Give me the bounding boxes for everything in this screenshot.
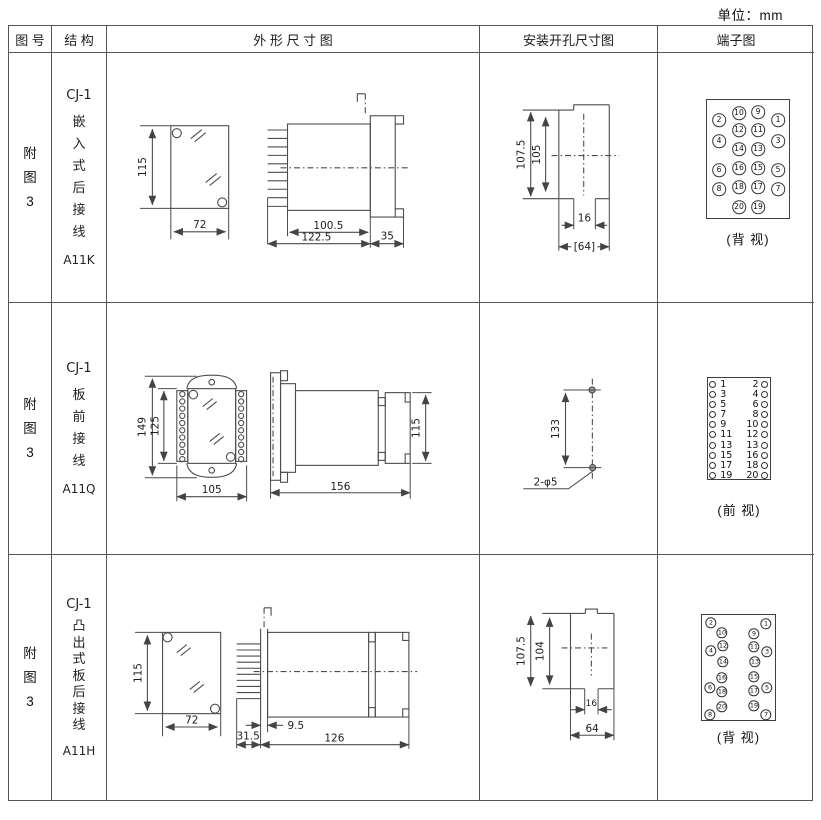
terminal-13: 13 <box>751 142 765 156</box>
terminal-circle <box>709 411 716 418</box>
dim-front-height: 115 <box>137 157 149 177</box>
terminal-pair-row: 34 <box>708 389 770 399</box>
structure-cell-row1: CJ-1 嵌 入 式 后 接 线 A11K <box>52 53 107 303</box>
structure-code: A11Q <box>63 482 96 496</box>
terminal-pair-row: 78 <box>708 410 770 420</box>
terminal-circle <box>761 421 768 428</box>
dim-slot-width: 16 <box>578 212 591 224</box>
terminal-circle <box>709 452 716 459</box>
structure-model: CJ-1 <box>66 361 91 376</box>
terminal-8: 8 <box>704 709 715 720</box>
dim-hole-spacing: 133 <box>550 419 562 439</box>
fig-no-cell-row2: 附 图 3 <box>9 303 52 555</box>
terminal-17: 17 <box>748 685 759 696</box>
units-label: 单位：mm <box>718 4 784 24</box>
terminal-view-caption: (前 视) <box>707 500 771 519</box>
install-drawing-a11h: 107.5 104 16 64 <box>480 555 657 800</box>
dim-side-total: 122.5 <box>301 232 331 244</box>
terminal-5: 5 <box>761 682 772 693</box>
terminal-13: 13 <box>749 656 760 667</box>
dim-slot-width: 16 <box>586 699 598 709</box>
fig-no-cell-row3: 附 图 3 <box>9 555 52 800</box>
dim-front-inner-height: 125 <box>149 416 161 436</box>
dim-cutout-width: [64] <box>574 241 595 253</box>
structure-cell-row3: CJ-1 凸 出 式 板 后 接 线 A11H <box>52 555 107 800</box>
terminal-11: 11 <box>751 123 765 137</box>
dim-cutout-width: 64 <box>586 723 600 735</box>
drawing-sheet: 单位：mm 图 号 结 构 外 形 尺 寸 图 安装开孔尺寸图 端子图 附 图 … <box>0 0 821 820</box>
structure-model: CJ-1 <box>66 597 91 612</box>
terminal-pair-row: 12 <box>708 379 770 389</box>
header-install: 安装开孔尺寸图 <box>480 26 658 53</box>
dim-cutout-inner-height: 105 <box>531 145 543 165</box>
structure-cell-row2: CJ-1 板 前 接 线 A11Q <box>52 303 107 555</box>
install-drawing-a11q: 133 2-φ5 <box>480 303 657 554</box>
terminal-19: 19 <box>751 200 765 214</box>
terminal-7: 7 <box>760 709 771 720</box>
drawing-table: 图 号 结 构 外 形 尺 寸 图 安装开孔尺寸图 端子图 附 图 3 CJ-1… <box>8 25 813 801</box>
terminal-circle <box>761 411 768 418</box>
structure-code: A11K <box>63 253 94 267</box>
terminal-cell-row1: 2109141211314136161558181772019 (背 视) <box>658 53 814 303</box>
header-outline: 外 形 尺 寸 图 <box>107 26 480 53</box>
terminal-3: 3 <box>761 646 772 657</box>
header-terminal: 端子图 <box>658 26 814 53</box>
terminal-18: 18 <box>732 180 746 194</box>
terminal-6: 6 <box>704 682 715 693</box>
terminal-20: 20 <box>732 200 746 214</box>
terminal-3: 3 <box>771 134 785 148</box>
terminal-circle <box>761 431 768 438</box>
terminal-circle <box>709 472 716 479</box>
outline-cell-row2: 149 125 105 115 156 <box>107 303 480 555</box>
terminal-10: 10 <box>716 627 727 638</box>
terminal-circle <box>761 401 768 408</box>
terminal-circle <box>709 381 716 388</box>
terminal-5: 5 <box>771 163 785 177</box>
dim-cutout-outer-height: 107.5 <box>516 636 528 666</box>
structure-mount-type: 凸 出 式 板 后 接 线 <box>72 618 85 734</box>
outline-cell-row1: 115 72 100.5 122.5 35 <box>107 53 480 303</box>
dim-side-height: 115 <box>411 418 423 438</box>
terminal-pair-row: 1313 <box>708 440 770 450</box>
terminal-10: 10 <box>732 106 746 120</box>
terminal-6: 6 <box>712 163 726 177</box>
terminal-circle <box>761 391 768 398</box>
dim-front-height: 115 <box>132 663 144 683</box>
terminal-circle <box>761 472 768 479</box>
terminal-7: 7 <box>771 182 785 196</box>
terminal-2: 2 <box>712 113 726 127</box>
terminal-circle <box>709 391 716 398</box>
fig-no-label: 附 图 3 <box>23 642 37 714</box>
terminal-14: 14 <box>732 142 746 156</box>
header-structure: 结 构 <box>52 26 107 53</box>
dim-cutout-outer-height: 107.5 <box>516 140 528 170</box>
terminal-circle <box>761 442 768 449</box>
terminal-14: 14 <box>717 656 728 667</box>
terminal-circle <box>761 381 768 388</box>
terminal-circle <box>709 462 716 469</box>
terminal-cell-row2: 1234567891011121313151617181920 (前 视) <box>658 303 814 555</box>
terminal-12: 12 <box>717 640 728 651</box>
terminal-1: 1 <box>760 618 771 629</box>
terminal-circle <box>709 421 716 428</box>
outline-drawing-a11h: 115 72 9.5 31.5 126 <box>107 555 479 800</box>
terminal-20: 20 <box>716 701 727 712</box>
dim-front-width: 72 <box>193 219 206 231</box>
terminal-number: 20 <box>746 470 758 481</box>
outline-drawing-a11q: 149 125 105 115 156 <box>107 303 479 554</box>
terminal-16: 16 <box>732 161 746 175</box>
fig-no-label: 附 图 3 <box>23 393 37 465</box>
dim-side-total: 156 <box>330 481 350 493</box>
install-cell-row2: 133 2-φ5 <box>480 303 658 555</box>
dim-front-width: 72 <box>185 714 198 726</box>
terminal-cell-row3: 2110912114314131615651817201987 (背 视) <box>658 555 814 800</box>
dim-front-width: 105 <box>202 484 222 496</box>
terminal-12: 12 <box>732 123 746 137</box>
terminal-17: 17 <box>751 180 765 194</box>
terminal-circle <box>709 431 716 438</box>
terminal-pair-row: 910 <box>708 420 770 430</box>
terminal-pair-row: 1112 <box>708 430 770 440</box>
terminal-view-caption: (背 视) <box>701 727 776 746</box>
terminal-diagram-back-view: 2110912114314131615651817201987 <box>701 614 776 721</box>
hole-diameter-label: 2-φ5 <box>534 476 558 488</box>
terminal-15: 15 <box>748 671 759 682</box>
dim-board-thickness: 9.5 <box>288 720 305 732</box>
terminal-9: 9 <box>748 628 759 639</box>
install-cell-row1: 107.5 105 16 [64] <box>480 53 658 303</box>
terminal-view-caption: (背 视) <box>706 229 790 248</box>
structure-model: CJ-1 <box>66 88 91 103</box>
terminal-diagram-back-view: 2109141211314136161558181772019 <box>706 99 790 219</box>
terminal-2: 2 <box>705 617 716 628</box>
fig-no-cell-row1: 附 图 3 <box>9 53 52 303</box>
terminal-circle <box>709 401 716 408</box>
terminal-15: 15 <box>751 161 765 175</box>
header-fig-no: 图 号 <box>9 26 52 53</box>
terminal-pair-row: 1516 <box>708 450 770 460</box>
terminal-16: 16 <box>716 672 727 683</box>
dim-side-flange: 35 <box>381 231 394 243</box>
terminal-4: 4 <box>712 134 726 148</box>
dim-side-total: 126 <box>324 733 344 745</box>
terminal-19: 19 <box>748 700 759 711</box>
structure-mount-type: 嵌 入 式 后 接 线 <box>72 111 85 243</box>
terminal-1: 1 <box>771 113 785 127</box>
terminal-circle <box>761 452 768 459</box>
dim-pin-depth: 31.5 <box>236 731 259 743</box>
structure-mount-type: 板 前 接 线 <box>72 384 85 472</box>
install-drawing-a11k: 107.5 105 16 [64] <box>480 53 657 302</box>
outline-cell-row3: 115 72 9.5 31.5 126 <box>107 555 480 800</box>
terminal-8: 8 <box>712 182 726 196</box>
terminal-number: 19 <box>720 470 736 481</box>
terminal-circle <box>761 462 768 469</box>
outline-drawing-a11k: 115 72 100.5 122.5 35 <box>107 53 479 302</box>
terminal-4: 4 <box>705 645 716 656</box>
dim-side-body: 100.5 <box>313 220 343 232</box>
terminal-pair-row: 1920 <box>708 470 770 480</box>
terminal-18: 18 <box>716 686 727 697</box>
dim-front-outer-height: 149 <box>136 417 148 437</box>
terminal-circle <box>709 442 716 449</box>
install-cell-row3: 107.5 104 16 64 <box>480 555 658 800</box>
terminal-11: 11 <box>748 641 759 652</box>
dim-cutout-inner-height: 104 <box>535 641 547 661</box>
fig-no-label: 附 图 3 <box>23 142 37 214</box>
structure-code: A11H <box>63 744 96 758</box>
terminal-diagram-front-view: 1234567891011121313151617181920 <box>707 377 771 481</box>
terminal-9: 9 <box>751 105 765 119</box>
terminal-pair-row: 1718 <box>708 460 770 470</box>
terminal-pair-row: 56 <box>708 399 770 409</box>
